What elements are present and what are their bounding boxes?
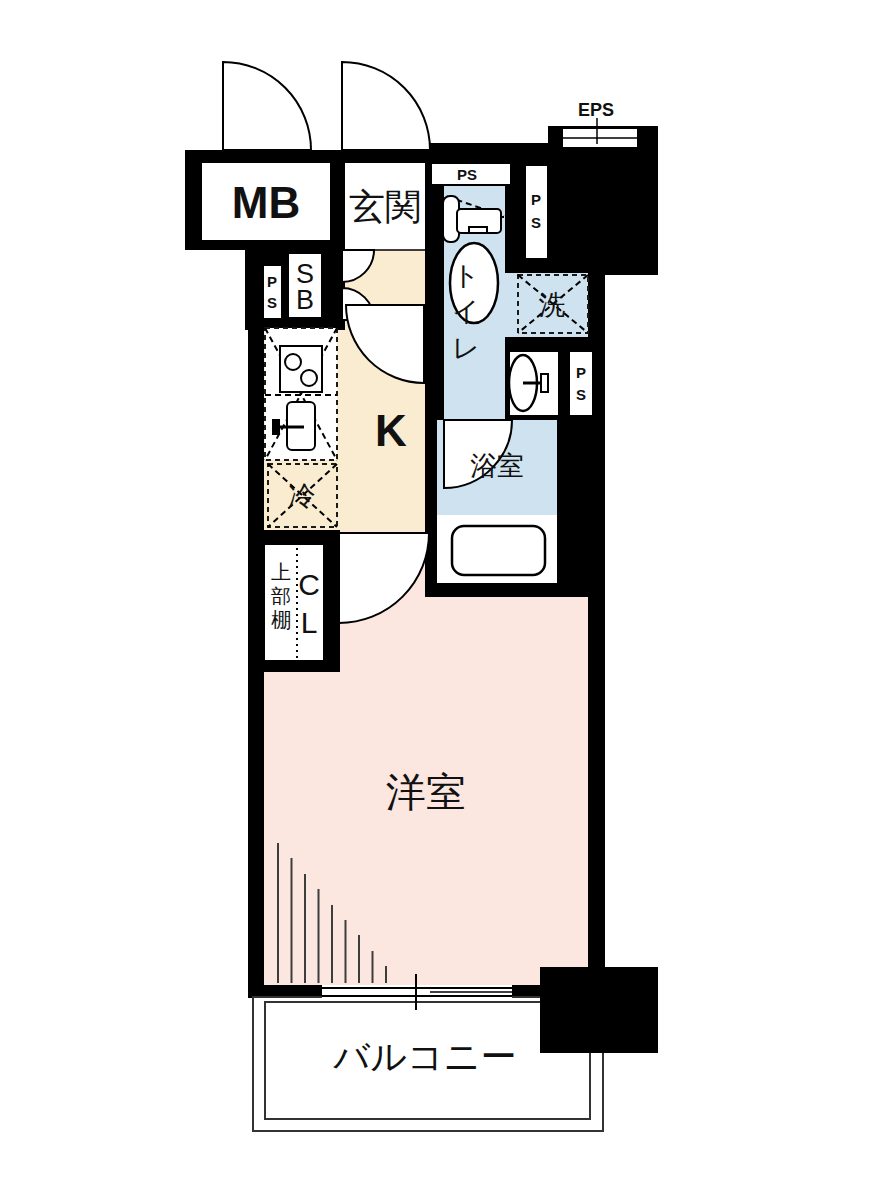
label-ps-upper-p: P	[531, 191, 541, 208]
label-bathroom: 浴室	[470, 451, 524, 481]
faucet-base-icon	[272, 419, 280, 435]
label-washer: 洗	[539, 290, 566, 320]
label-toilet-2: イ	[452, 297, 480, 327]
kitchen-counter	[265, 328, 337, 460]
label-kitchen: K	[375, 406, 407, 455]
label-eps: EPS	[578, 100, 614, 120]
label-balcony: バルコニー	[332, 1036, 516, 1077]
basin-ps-divider-wall	[558, 352, 570, 415]
label-toilet-3: レ	[452, 333, 480, 363]
bathtub-icon	[452, 526, 545, 575]
label-shelf-1: 上	[271, 561, 291, 583]
floor-plan-drawing: MB 玄関 EPS PS P S P S P S S B ト イ レ 洗 K 冷…	[0, 0, 880, 1200]
bath-left-wall	[425, 420, 437, 597]
label-fridge: 冷	[289, 481, 316, 511]
label-entrance: 玄関	[349, 186, 421, 227]
label-shelf-3: 棚	[271, 609, 291, 631]
label-ps-top: PS	[457, 166, 477, 183]
ps-box-lower	[570, 352, 592, 415]
stove-icon	[280, 346, 322, 392]
washer-bottom-wall	[505, 337, 588, 352]
bath-bottom-wall	[437, 583, 588, 597]
entrance-door-swing	[342, 62, 430, 150]
label-toilet-1: ト	[452, 261, 480, 291]
label-western-room: 洋室	[386, 770, 466, 814]
bath-right-wall	[557, 415, 588, 597]
ps-box-upper	[526, 166, 547, 258]
corner-wall-block	[540, 967, 658, 1053]
label-ps-kitchen-p: P	[267, 273, 277, 290]
entrance-top-wall	[345, 150, 425, 163]
floor-plan-page: MB 玄関 EPS PS P S P S P S S B ト イ レ 洗 K 冷…	[0, 0, 880, 1200]
toilet-seat-icon	[457, 209, 501, 233]
toilet-left-wall	[425, 186, 444, 420]
label-meter-box: MB	[232, 178, 300, 227]
label-ps-upper-s: S	[531, 214, 541, 231]
label-ps-lower-p: P	[576, 364, 586, 381]
label-ps-kitchen-s: S	[267, 294, 277, 311]
outer-door-swing-left	[223, 62, 311, 150]
label-shelf-2: 部	[271, 585, 291, 607]
label-ps-lower-s: S	[576, 386, 586, 403]
label-closet-c: C	[298, 568, 320, 601]
basin-faucet-base	[541, 374, 548, 392]
label-closet-l: L	[301, 606, 318, 639]
label-shoe-box-b: B	[296, 285, 314, 315]
